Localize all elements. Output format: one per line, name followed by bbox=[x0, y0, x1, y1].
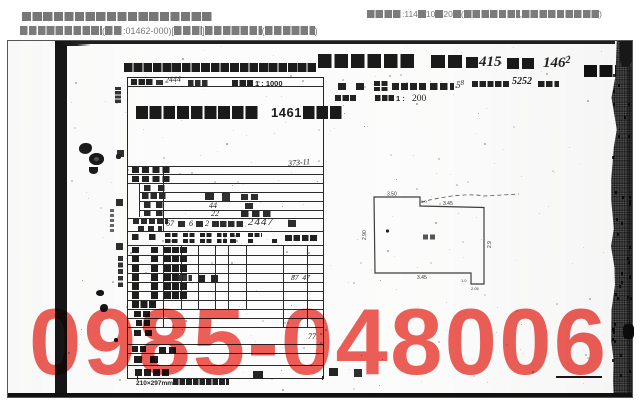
svg-text:3.45: 3.45 bbox=[417, 275, 427, 281]
svg-text:2.90: 2.90 bbox=[362, 230, 368, 240]
svg-text:3.50: 3.50 bbox=[387, 192, 397, 198]
svg-text:2.9: 2.9 bbox=[487, 241, 493, 248]
svg-text:3.45: 3.45 bbox=[443, 201, 453, 207]
svg-text:1.0: 1.0 bbox=[461, 278, 467, 283]
svg-text:1.0: 1.0 bbox=[421, 199, 427, 204]
